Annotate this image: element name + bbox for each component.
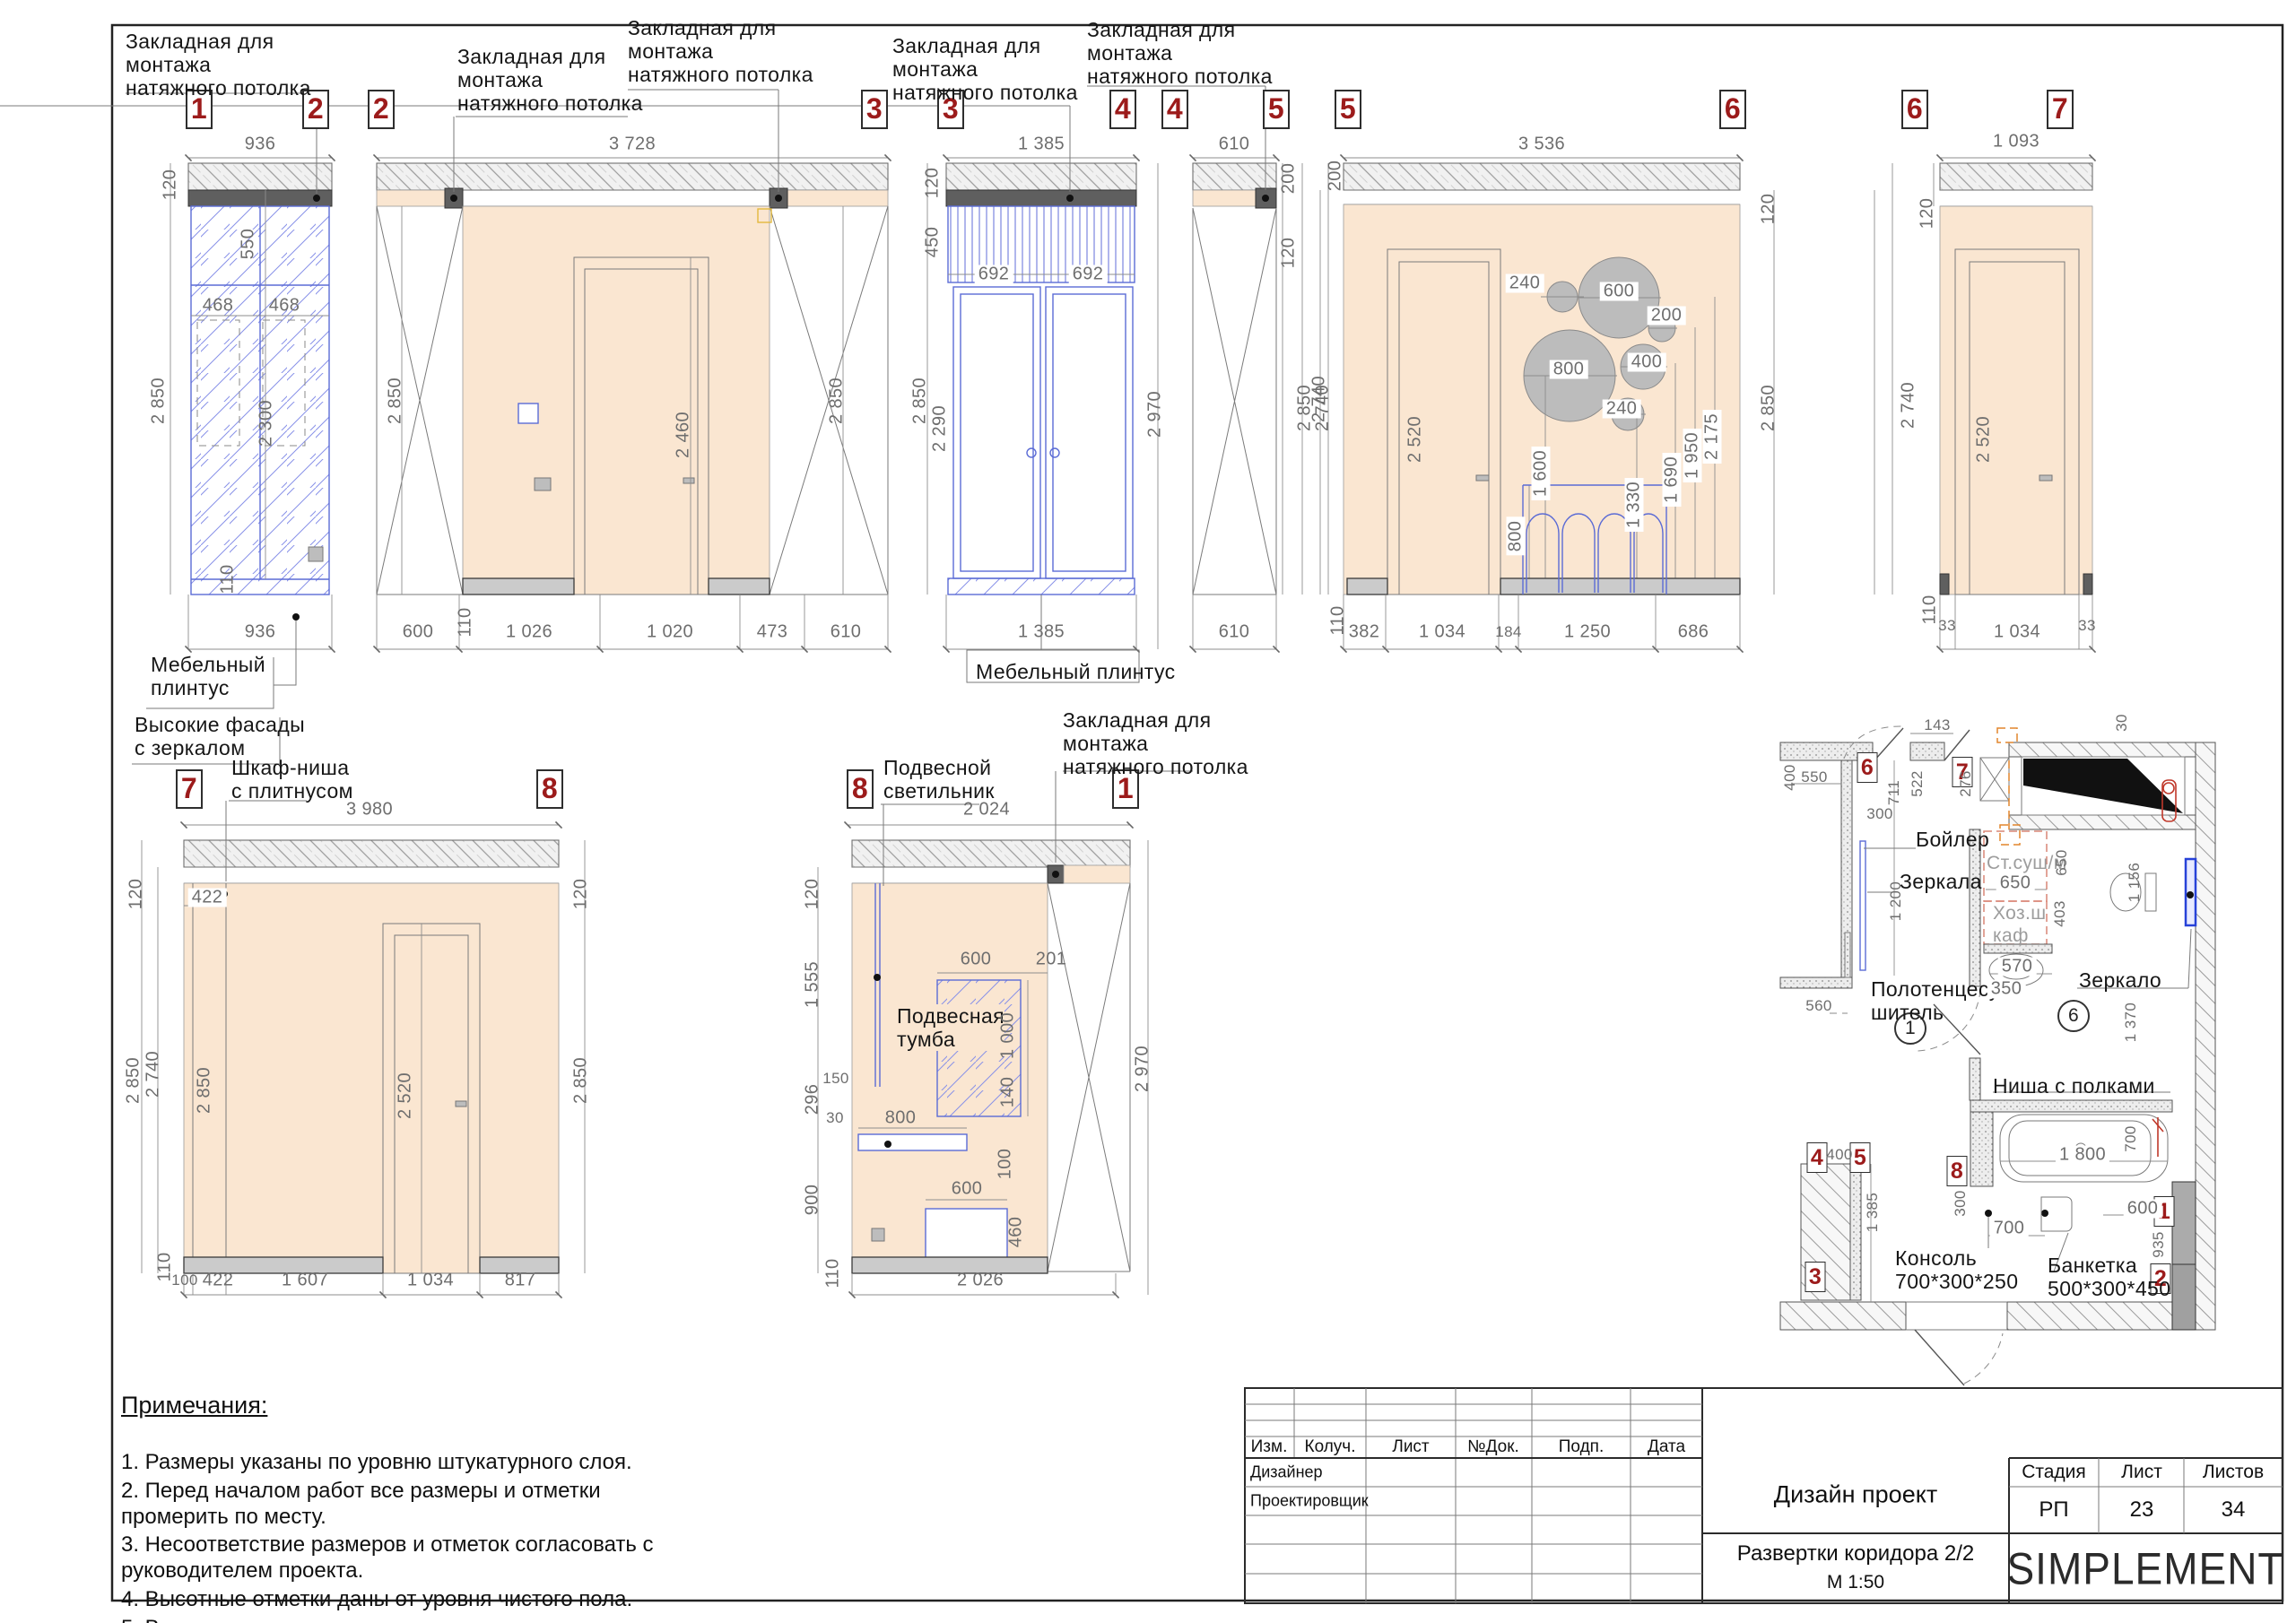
dim-label: 550 [239, 229, 258, 260]
dim-label: 800 [1507, 517, 1526, 556]
note-item: 1. Размеры указаны по уровню штукатурног… [121, 1450, 695, 1476]
dim-label: 1 950 [1683, 429, 1702, 482]
dim-label: 1 385 [1018, 135, 1065, 154]
duct-shape [2023, 759, 2183, 813]
view-marker-5: 5 [1263, 90, 1290, 129]
dim-label: 403 [2052, 900, 2068, 927]
dim-label: 1 800 [2056, 1146, 2109, 1165]
dim-label: 2 850 [828, 378, 847, 424]
socket-icon [309, 547, 323, 561]
dim-label: 3 980 [346, 801, 393, 820]
tb-col-izm: Изм. [1251, 1437, 1288, 1457]
view-marker-7: 7 [176, 769, 203, 809]
dim-label: 382 [1349, 623, 1380, 642]
elevation-2-3 [377, 90, 888, 649]
tb-col-list: Лист [1392, 1437, 1429, 1457]
utility-cab-note: Хоз.ш каф [1993, 902, 2047, 947]
dim-label: 2 970 [1146, 391, 1165, 438]
dim-label: 2 520 [1975, 416, 1994, 463]
dim-label: 935 [2151, 1231, 2167, 1258]
dim-label: 900 [804, 1185, 822, 1216]
dim-label: 400 [1782, 764, 1798, 791]
dim-label: 120 [1760, 194, 1779, 225]
dim-label: 1 026 [506, 623, 552, 642]
dim-label: 120 [1280, 238, 1299, 269]
niche-note: Шкаф-ниша с плитнусом [231, 756, 353, 803]
door-handle-icon [683, 478, 694, 483]
dim-label: 422 [188, 889, 227, 907]
wardrobe-door-left [953, 287, 1040, 578]
dim-label: 1 034 [1994, 623, 2040, 642]
embed-note: Закладная для монтажа натяжного потолка [1087, 18, 1273, 89]
dim-label: 120 [572, 879, 591, 910]
dim-label: 610 [831, 623, 862, 642]
dim-label: 1 607 [282, 1271, 328, 1290]
outer-wall [2196, 742, 2215, 1330]
dim-label: 1 555 [804, 961, 822, 1008]
tb-role-engineer: Проектировщик [1250, 1492, 1369, 1511]
dim-label: 936 [245, 135, 276, 154]
switch-icon [518, 404, 538, 423]
view-marker-3: 3 [861, 90, 888, 129]
dim-label: 1 020 [647, 623, 693, 642]
dim-label: 600 [952, 1180, 983, 1199]
dim-label: 184 [1495, 624, 1522, 640]
dim-label: 1 600 [1532, 447, 1551, 500]
view-marker-4: 4 [1161, 90, 1188, 129]
wall-mirrors [1860, 841, 1865, 970]
dim-label: 468 [203, 297, 234, 316]
notes-block: Примечания: 1. Размеры указаны по уровню… [121, 1392, 695, 1623]
view-marker-5: 5 [1335, 90, 1361, 129]
dim-label: 692 [975, 265, 1013, 284]
tb-stage-label: Стадия [2022, 1462, 2086, 1483]
dim-label: 2 300 [257, 400, 276, 447]
view-marker-8: 8 [536, 769, 563, 809]
dim-label: 300 [1952, 1190, 1969, 1217]
dim-label: 300 [1866, 806, 1893, 822]
dim-label: 100 [996, 1149, 1015, 1180]
furniture-plinth-note: Мебельный плинтус [976, 660, 1176, 683]
embed-note: Закладная для монтажа натяжного потолка [892, 34, 1078, 105]
embed-note: Закладная для монтажа натяжного потолка [126, 30, 311, 100]
socket-icon [535, 478, 551, 490]
dim-label: 460 [1007, 1217, 1026, 1248]
tb-sheet-title: Развертки коридора 2/2 [1737, 1541, 1974, 1567]
dim-label: 473 [757, 623, 788, 642]
plan-marker-4: 4 [1807, 1142, 1828, 1173]
vanity-cabinet [926, 1209, 1007, 1260]
dim-label: 2 520 [1406, 416, 1425, 463]
dim-label: 110 [219, 564, 238, 594]
note-item: 4. Высотные отметки даны от уровня чисто… [121, 1587, 695, 1613]
dim-label: 1 385 [1018, 623, 1065, 642]
door-handle-icon [1476, 475, 1489, 481]
shelf [858, 1134, 967, 1150]
bench-note: Банкетка 500*300*450 [2048, 1254, 2170, 1300]
dim-label: 2 460 [674, 412, 693, 458]
dim-label: 1 330 [1625, 478, 1644, 532]
dim-label: 2 026 [957, 1271, 1004, 1290]
dim-label: 296 [804, 1084, 822, 1115]
dim-label: 240 [1603, 400, 1641, 419]
dim-label: 600 [403, 623, 434, 642]
view-marker-7: 7 [2047, 90, 2074, 129]
view-marker-8: 8 [847, 769, 874, 809]
plan-marker-8: 8 [1947, 1156, 1968, 1186]
dim-label: 2 520 [396, 1072, 415, 1119]
tb-col-data: Дата [1648, 1437, 1685, 1457]
note-item: 2. Перед началом работ все размеры и отм… [121, 1479, 695, 1531]
dim-label: 1 200 [1888, 881, 1904, 922]
embed-note: Закладная для монтажа натяжного потолка [1063, 708, 1248, 779]
dim-label: 3 536 [1518, 135, 1565, 154]
dim-label: 700 [1990, 1219, 2029, 1238]
plan-marker-3: 3 [1805, 1262, 1826, 1292]
dim-label: 650 [2054, 849, 2070, 876]
dim-label: 120 [1918, 198, 1937, 230]
dim-label: 150 [822, 1071, 849, 1087]
plan-marker-5: 5 [1850, 1142, 1871, 1173]
door-handle-icon [2039, 475, 2052, 481]
dim-label: 100 [171, 1272, 198, 1289]
drawing-sheet: 12233445566778816745831216Закладная для … [0, 0, 2296, 1623]
pendant-light-note: Подвесной светильник [883, 756, 995, 803]
dim-label: 522 [1909, 770, 1926, 797]
dim-label: 3 728 [609, 135, 656, 154]
dim-label: 711 [1886, 780, 1902, 805]
dim-label: 110 [457, 607, 475, 637]
dim-label: 30 [826, 1110, 844, 1126]
tb-col-podp: Подп. [1559, 1437, 1604, 1457]
dim-label: 422 [203, 1271, 234, 1290]
tb-col-koluch: Колуч. [1305, 1437, 1356, 1457]
dim-label: 120 [127, 879, 146, 910]
dim-label: 650 [1996, 874, 2035, 893]
dim-label: 2 290 [931, 405, 950, 452]
dim-label: 350 [1987, 980, 2026, 999]
mirror-fronts-note: Высокие фасады с зеркалом [135, 713, 305, 759]
dim-label: 2 850 [572, 1057, 591, 1104]
dim-label: 120 [161, 169, 180, 201]
dim-label: 2 740 [144, 1051, 163, 1098]
dim-label: 686 [1678, 623, 1709, 642]
tb-scale: М 1:50 [1827, 1572, 1884, 1593]
dim-label: 240 [1506, 274, 1544, 293]
wardrobe-door-right [1046, 287, 1133, 578]
dim-label: 1 093 [1993, 133, 2039, 152]
dim-label: 1 156 [2126, 863, 2143, 903]
embed-note: Закладная для монтажа натяжного потолка [457, 45, 643, 116]
dim-label: 400 [1628, 353, 1666, 372]
dim-label: 200 [1326, 161, 1345, 192]
note-item: 3. Несоответствие размеров и отметок сог… [121, 1532, 695, 1584]
socket-icon [872, 1228, 884, 1241]
boiler-note: Бойлер [1916, 828, 1989, 851]
dim-label: 800 [1550, 360, 1588, 379]
dim-label: 2 850 [1760, 385, 1779, 431]
view-marker-6: 6 [1719, 90, 1746, 129]
view-marker-4: 4 [1109, 90, 1136, 129]
dim-label: 468 [269, 297, 300, 316]
dim-label: 700 [2123, 1125, 2139, 1152]
dim-label: 610 [1219, 135, 1250, 154]
dim-label: 2 850 [387, 378, 405, 424]
dim-label: 2 175 [1703, 410, 1722, 464]
dim-label: 610 [1219, 623, 1250, 642]
tb-stage-value: РП [2039, 1497, 2068, 1523]
dim-label: 692 [1069, 265, 1108, 284]
dim-label: 110 [1921, 595, 1940, 624]
dim-label: 600 [961, 950, 992, 969]
dim-label: 30 [2114, 714, 2130, 732]
dim-label: 110 [1329, 605, 1348, 635]
dim-label: 1 385 [1865, 1193, 1881, 1233]
dim-label: 2 850 [196, 1067, 214, 1114]
tb-sheets-total: 34 [2222, 1497, 2246, 1523]
tb-project-name: Дизайн проект [1774, 1481, 1937, 1509]
mirror-note: Зеркало [2079, 968, 2161, 992]
dim-label: 2 850 [125, 1057, 143, 1104]
dim-label: 560 [1805, 998, 1832, 1014]
dim-label: 2 740 [1900, 382, 1918, 429]
dim-label: 2 024 [963, 801, 1010, 820]
dim-label: 817 [505, 1271, 536, 1290]
dim-label: 1 034 [1419, 623, 1465, 642]
plan-marker-6: 6 [1857, 752, 1878, 783]
note-item: 5. Высотные отметки и размерные привязки… [121, 1616, 695, 1623]
dim-label: 1 000 [999, 1012, 1018, 1059]
notes-title: Примечания: [121, 1392, 695, 1419]
dim-label: 110 [824, 1258, 843, 1288]
dim-label: 450 [924, 227, 943, 258]
embed-note: Закладная для монтажа натяжного потолка [628, 16, 813, 87]
dim-label: 143 [1924, 717, 1951, 733]
dim-label: 120 [924, 168, 943, 199]
door-handle-icon [456, 1101, 466, 1107]
dim-label: 140 [999, 1077, 1018, 1108]
tb-sheet-label: Лист [2121, 1462, 2162, 1483]
elevation-7-8 [142, 801, 585, 1295]
shelf-niche-note: Ниша с полками [1993, 1074, 2155, 1098]
drawing-canvas [0, 0, 2296, 1623]
dim-label: 276 [1958, 770, 1974, 797]
tb-col-ndok: №Док. [1467, 1437, 1519, 1457]
dim-label: 400 [1826, 1147, 1853, 1163]
console-note: Консоль 700*300*250 [1895, 1246, 2018, 1293]
dim-label: 120 [804, 879, 822, 910]
dim-label: 2 850 [911, 378, 930, 424]
dim-label: 2 850 [150, 378, 169, 424]
dim-label: 2 740 [1310, 376, 1329, 422]
vanity-note: Подвесная тумба [897, 1004, 1004, 1051]
elevation-5-6 [1328, 158, 1774, 649]
tb-sheet-number: 23 [2130, 1497, 2154, 1523]
tb-sheets-label: Листов [2203, 1462, 2264, 1483]
towel-rail-note: Полотенцесу шитель [1871, 977, 2000, 1024]
dim-label: 936 [245, 623, 276, 642]
tb-role-designer: Дизайнер [1250, 1463, 1323, 1482]
dim-label: 2 970 [1134, 1046, 1152, 1092]
view-marker-2: 2 [368, 90, 395, 129]
dim-label: 200 [1648, 307, 1686, 325]
dim-label: 201 [1036, 950, 1067, 969]
dim-label: 1 690 [1663, 453, 1682, 507]
dim-label: 200 [1280, 163, 1299, 195]
dim-label: 550 [1801, 769, 1828, 785]
dim-label: 600 [2124, 1200, 2162, 1219]
view-marker-6: 6 [1901, 90, 1928, 129]
furniture-plinth-note: Мебельный плинтус [151, 653, 265, 699]
dim-label: 800 [885, 1109, 917, 1128]
dim-label: 570 [1998, 958, 2037, 976]
company-logo: SIMPLEMENT [2006, 1542, 2283, 1594]
dim-label: 600 [1600, 282, 1639, 301]
dim-label: 33 [2078, 618, 2096, 634]
dim-label: 33 [1938, 618, 1956, 634]
mirrors-note: Зеркала [1900, 870, 1982, 893]
dim-label: 1 034 [407, 1271, 454, 1290]
room-tag-6: 6 [2057, 1000, 2090, 1032]
dim-label: 1 370 [2123, 1002, 2139, 1043]
dim-label: 1 250 [1564, 623, 1611, 642]
